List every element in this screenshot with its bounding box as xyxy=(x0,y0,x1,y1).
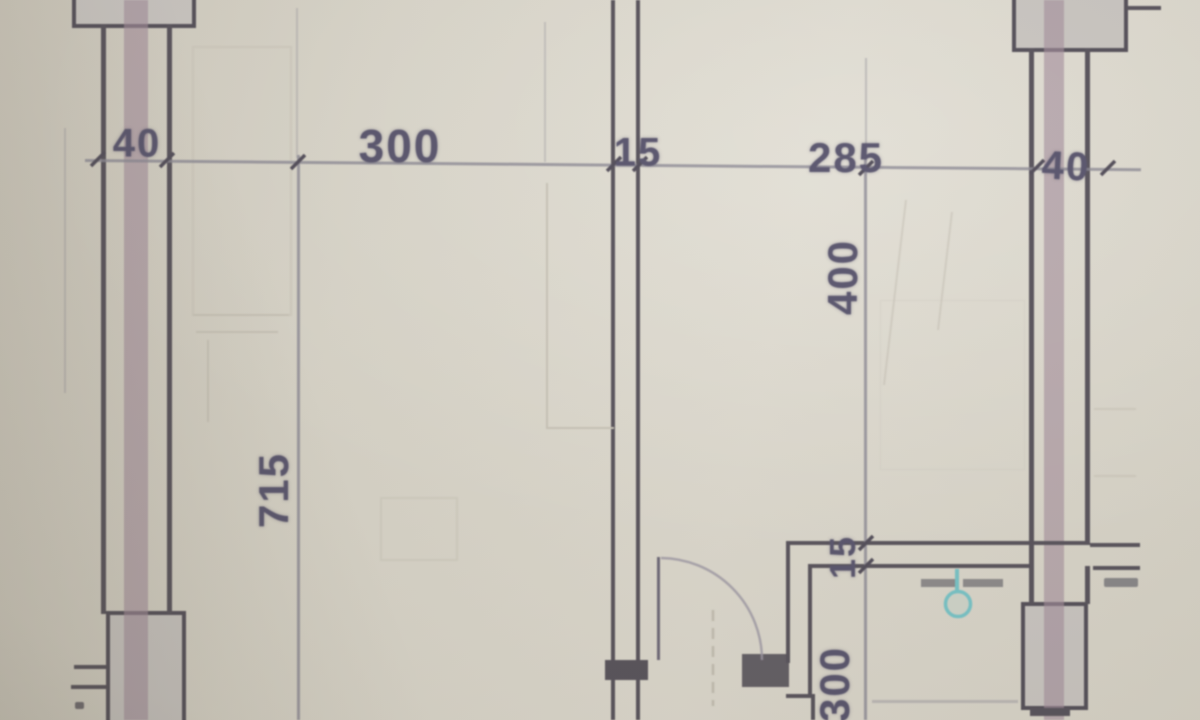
plan-layer: 40 300 15 285 40 400 715 15 300 xyxy=(0,0,1200,720)
wall-left-outer-line xyxy=(101,24,106,614)
furniture-sketch-box xyxy=(380,497,458,561)
wall-stub-bottom-left-2 xyxy=(71,685,107,689)
bath-wall-left-outer xyxy=(786,541,790,663)
furniture-sketch-line-2 xyxy=(196,331,278,333)
dim-label-top-285: 285 xyxy=(808,134,884,182)
dim-label-top-300: 300 xyxy=(359,119,442,173)
furniture-sketch-line-1 xyxy=(193,314,289,316)
dim-label-400: 400 xyxy=(819,239,867,315)
fixture-icon xyxy=(921,569,1003,617)
bath-floor-line xyxy=(872,700,1018,703)
dim-label-15-bottom: 15 xyxy=(822,535,864,579)
extension-line-center xyxy=(544,22,546,162)
floor-plan-photo: 40 300 15 285 40 400 715 15 300 xyxy=(0,0,1200,720)
furniture-sketch-right-room xyxy=(880,300,1025,470)
wall-stub-right-1 xyxy=(1090,543,1140,547)
wall-left-core xyxy=(124,0,148,720)
furniture-sketch-wardrobe xyxy=(192,46,292,316)
furniture-sketch-line-4 xyxy=(546,183,548,429)
wall-stub-bottom-left-1 xyxy=(74,665,107,669)
dim-label-300-bottom: 300 xyxy=(811,646,859,720)
dim-label-top-40-right: 40 xyxy=(1041,143,1092,190)
wall-right-outer-line-upper xyxy=(1085,48,1090,545)
door-leaf xyxy=(657,557,660,660)
sketch-dash-right-2 xyxy=(1094,475,1136,477)
dim-label-715: 715 xyxy=(250,452,298,528)
wall-middle-end-cap xyxy=(605,660,648,680)
wall-right-bottom-cap xyxy=(1030,708,1070,716)
wall-middle-left-line xyxy=(611,0,615,720)
door-jamb-block xyxy=(742,654,789,687)
furniture-sketch-line-3 xyxy=(207,340,209,422)
dim-label-top-40-left: 40 xyxy=(113,122,162,167)
wall-stub-right-2 xyxy=(1093,566,1140,570)
hatch-mark-right xyxy=(1104,578,1138,587)
wall-left-inner-line xyxy=(167,24,172,614)
wall-right-inner-line xyxy=(1029,48,1034,604)
mark-bottom-left xyxy=(75,702,84,709)
dimension-ticks-vertical xyxy=(291,155,873,573)
door-swing-arc xyxy=(661,558,762,660)
column-top-right xyxy=(1012,0,1128,52)
wall-right-outer-line-lower xyxy=(1085,566,1090,604)
bath-wall-jog-horizontal xyxy=(786,694,814,698)
dimension-line-left-vertical xyxy=(297,155,300,720)
extension-line-left-vertical xyxy=(296,8,298,158)
sketch-dash-right-1 xyxy=(1094,408,1136,410)
wall-right-core xyxy=(1044,0,1064,720)
furniture-sketch-line-5 xyxy=(546,427,614,429)
wall-stub-top-right xyxy=(1127,6,1161,10)
dim-label-top-15: 15 xyxy=(614,131,663,176)
extension-line-far-left xyxy=(64,128,66,393)
wall-middle-right-line xyxy=(636,0,640,720)
